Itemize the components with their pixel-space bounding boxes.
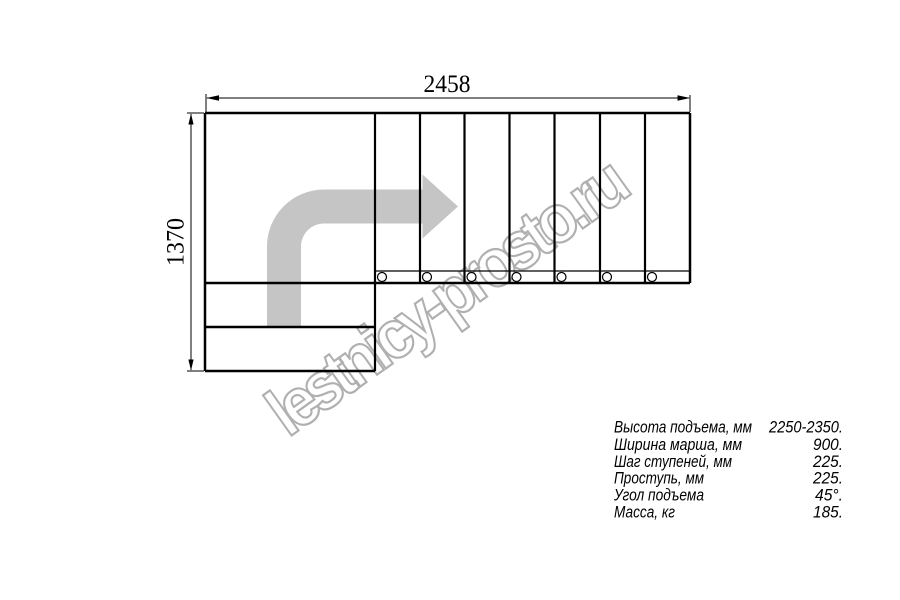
svg-text:2250-2350.: 2250-2350. — [768, 418, 843, 437]
svg-text:Высота подъема, мм: Высота подъема, мм — [614, 418, 752, 437]
svg-text:2458: 2458 — [424, 71, 471, 98]
svg-text:1370: 1370 — [162, 218, 189, 266]
svg-text:185.: 185. — [813, 503, 843, 522]
svg-text:Масса, кг: Масса, кг — [614, 503, 675, 522]
